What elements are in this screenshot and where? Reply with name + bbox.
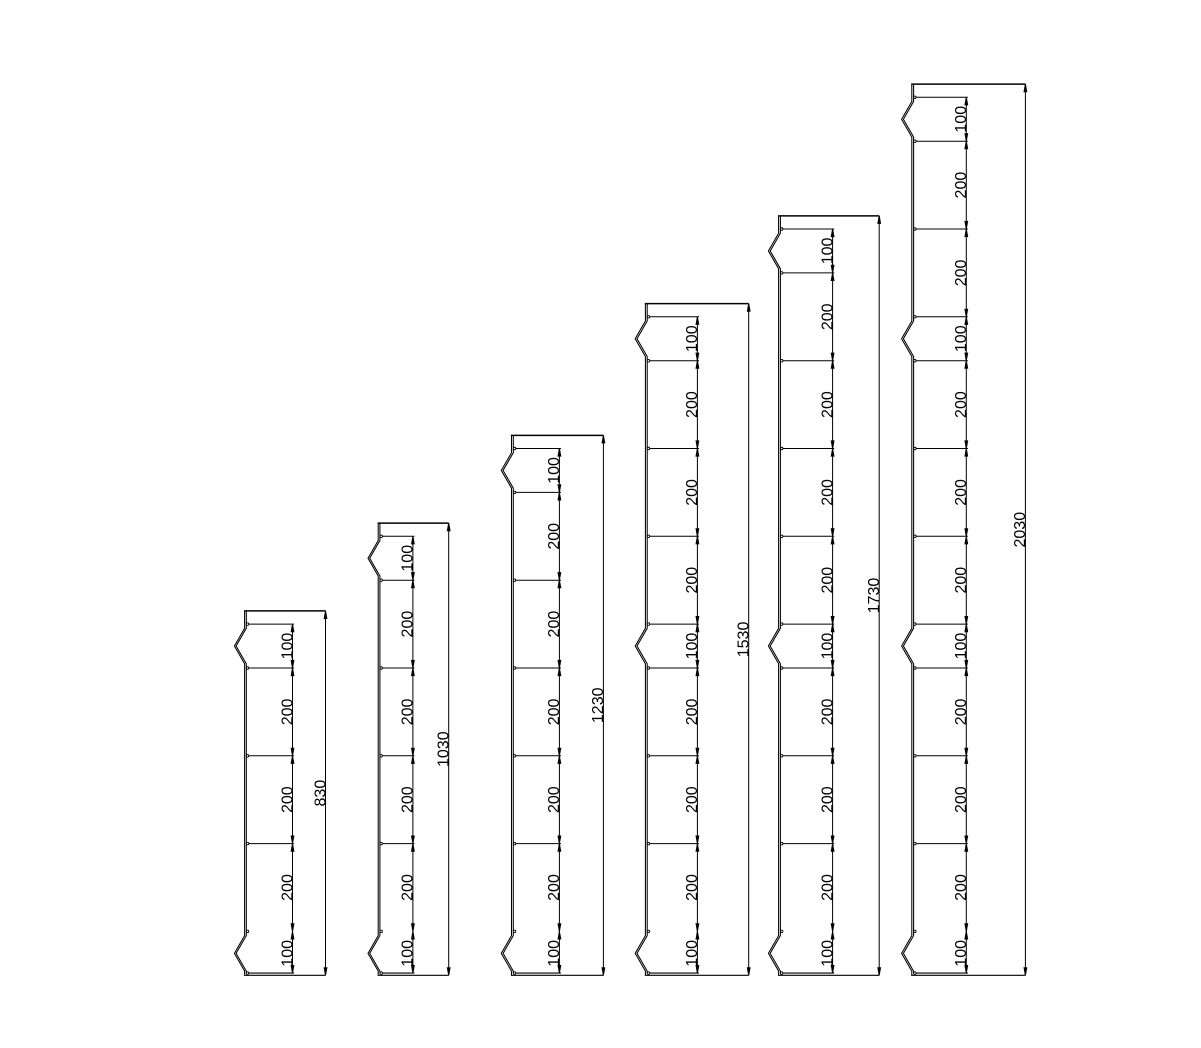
svg-text:100: 100 <box>819 238 836 265</box>
svg-text:200: 200 <box>684 874 701 901</box>
svg-text:100: 100 <box>953 106 970 133</box>
svg-text:1030: 1030 <box>436 731 453 767</box>
svg-text:1530: 1530 <box>736 622 753 658</box>
svg-text:100: 100 <box>684 940 701 967</box>
svg-text:200: 200 <box>953 259 970 286</box>
svg-text:2030: 2030 <box>1012 512 1029 548</box>
svg-text:100: 100 <box>546 940 563 967</box>
svg-text:200: 200 <box>819 698 836 725</box>
svg-text:200: 200 <box>546 611 563 638</box>
svg-text:100: 100 <box>684 325 701 352</box>
svg-text:200: 200 <box>953 567 970 594</box>
svg-text:830: 830 <box>312 780 329 807</box>
svg-text:200: 200 <box>819 479 836 506</box>
svg-text:100: 100 <box>953 940 970 967</box>
svg-text:200: 200 <box>819 786 836 813</box>
svg-text:200: 200 <box>953 172 970 199</box>
svg-text:200: 200 <box>546 874 563 901</box>
svg-text:200: 200 <box>953 874 970 901</box>
svg-text:1730: 1730 <box>866 578 883 614</box>
svg-text:200: 200 <box>819 303 836 330</box>
svg-text:100: 100 <box>400 545 417 572</box>
svg-text:200: 200 <box>953 786 970 813</box>
svg-text:100: 100 <box>953 633 970 660</box>
svg-text:200: 200 <box>546 786 563 813</box>
svg-text:1230: 1230 <box>590 687 607 723</box>
svg-text:200: 200 <box>279 874 296 901</box>
svg-text:200: 200 <box>684 698 701 725</box>
svg-text:100: 100 <box>546 457 563 484</box>
svg-text:200: 200 <box>819 567 836 594</box>
svg-text:200: 200 <box>400 786 417 813</box>
svg-text:100: 100 <box>279 633 296 660</box>
svg-text:200: 200 <box>279 786 296 813</box>
svg-text:100: 100 <box>400 940 417 967</box>
svg-text:200: 200 <box>546 523 563 550</box>
svg-text:200: 200 <box>819 874 836 901</box>
svg-text:200: 200 <box>400 611 417 638</box>
svg-text:100: 100 <box>819 940 836 967</box>
svg-text:200: 200 <box>400 874 417 901</box>
svg-text:200: 200 <box>279 698 296 725</box>
svg-text:200: 200 <box>953 698 970 725</box>
svg-text:200: 200 <box>953 391 970 418</box>
svg-text:100: 100 <box>953 325 970 352</box>
svg-text:100: 100 <box>684 633 701 660</box>
svg-text:200: 200 <box>546 698 563 725</box>
svg-text:200: 200 <box>400 698 417 725</box>
svg-text:200: 200 <box>684 567 701 594</box>
svg-text:200: 200 <box>684 479 701 506</box>
svg-text:200: 200 <box>684 391 701 418</box>
svg-text:200: 200 <box>684 786 701 813</box>
svg-text:200: 200 <box>953 479 970 506</box>
svg-text:200: 200 <box>819 391 836 418</box>
svg-text:100: 100 <box>279 940 296 967</box>
svg-text:100: 100 <box>819 633 836 660</box>
